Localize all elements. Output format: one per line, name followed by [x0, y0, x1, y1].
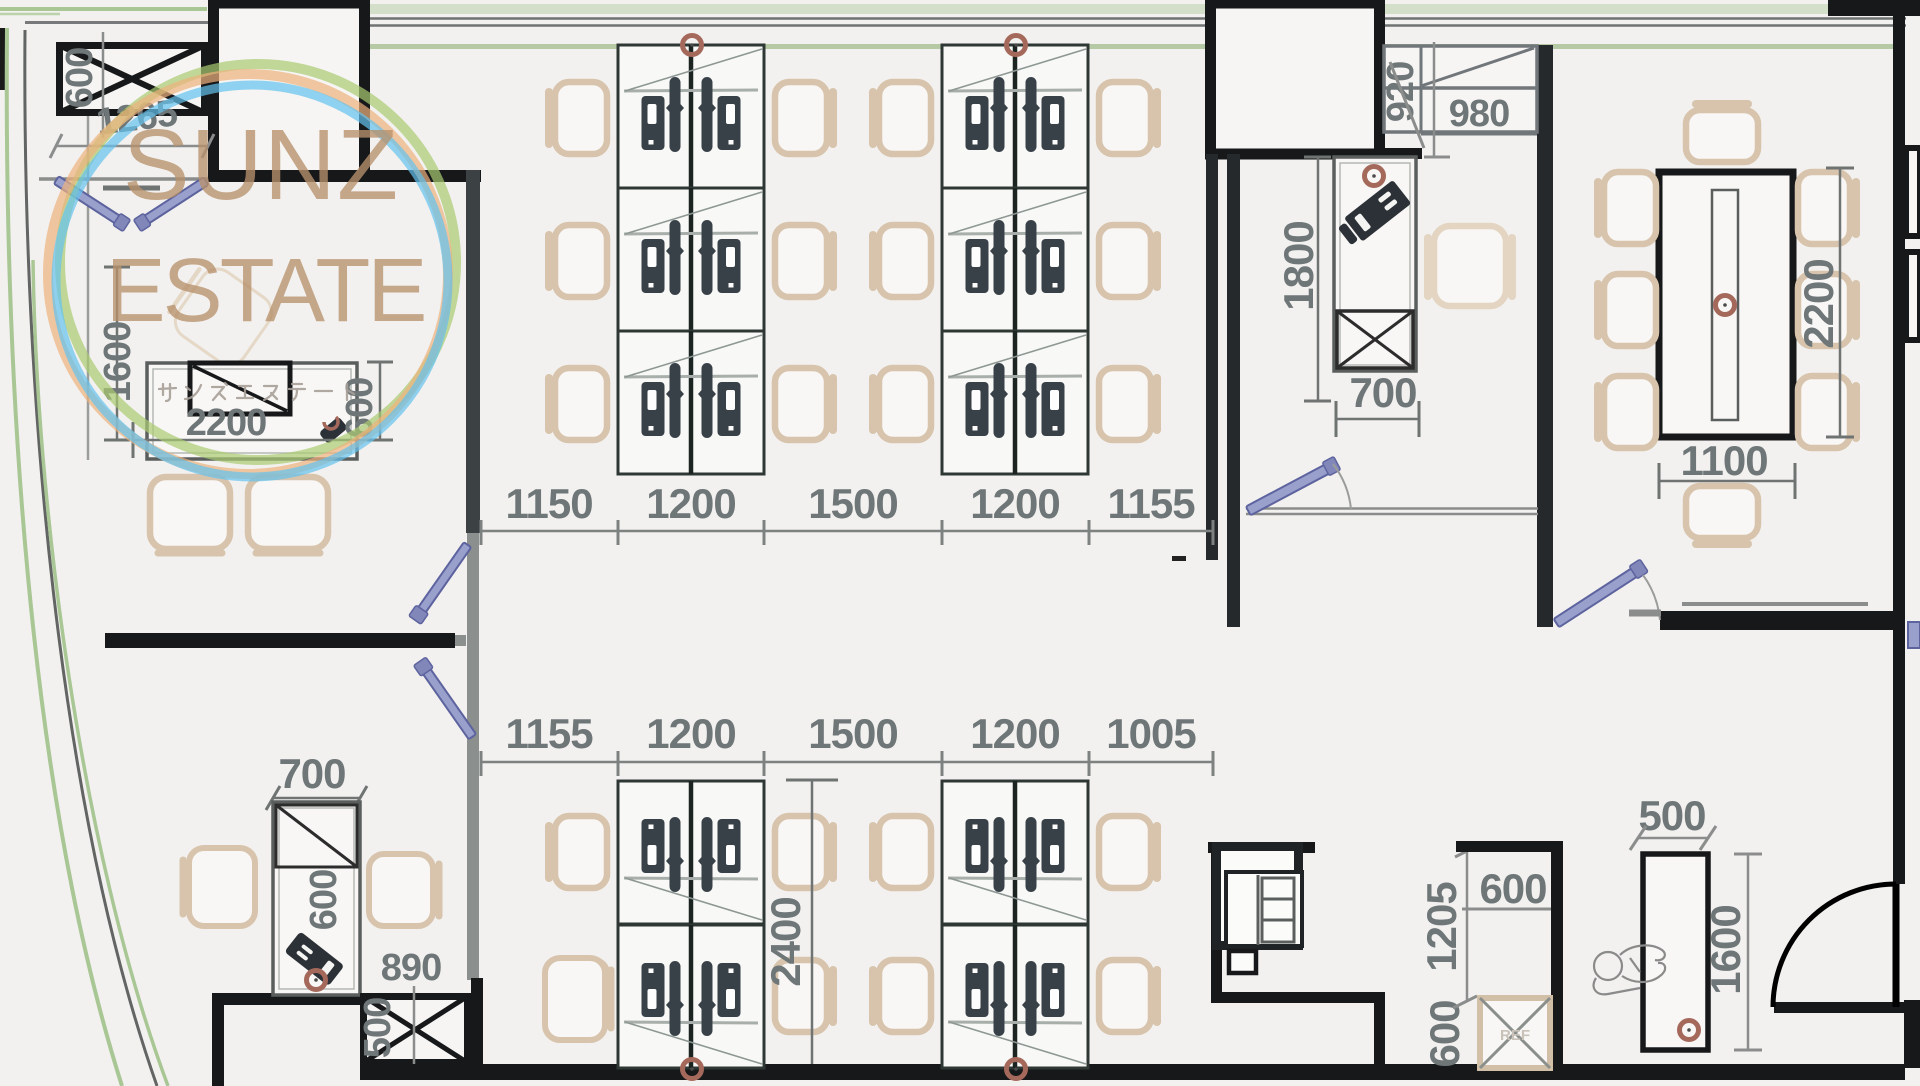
svg-text:1150: 1150	[505, 480, 592, 527]
svg-text:1205: 1205	[1418, 882, 1465, 972]
svg-text:1200: 1200	[646, 710, 735, 757]
svg-text:1600: 1600	[1702, 905, 1749, 994]
svg-text:ESTATE: ESTATE	[106, 241, 425, 341]
svg-text:2400: 2400	[762, 897, 809, 986]
svg-text:1155: 1155	[505, 710, 593, 757]
svg-text:1155: 1155	[1107, 480, 1195, 527]
svg-text:980: 980	[1449, 93, 1509, 135]
svg-text:600: 600	[1479, 865, 1546, 912]
svg-text:1500: 1500	[808, 710, 897, 757]
svg-text:500: 500	[1638, 792, 1705, 839]
svg-text:700: 700	[278, 750, 345, 797]
svg-text:1200: 1200	[970, 710, 1059, 757]
svg-text:1200: 1200	[646, 480, 735, 527]
svg-text:600: 600	[1421, 1000, 1468, 1067]
svg-text:700: 700	[1349, 369, 1416, 416]
svg-text:SUNZ: SUNZ	[123, 109, 399, 221]
svg-text:2200: 2200	[1795, 259, 1842, 348]
svg-text:1200: 1200	[970, 480, 1059, 527]
svg-text:600: 600	[303, 870, 345, 930]
svg-text:1800: 1800	[1275, 221, 1322, 310]
svg-text:1100: 1100	[1680, 437, 1767, 484]
svg-text:600: 600	[59, 48, 101, 108]
svg-text:500: 500	[357, 998, 399, 1058]
svg-text:890: 890	[381, 947, 441, 989]
svg-text:REF: REF	[1500, 1027, 1530, 1044]
svg-text:2200: 2200	[186, 402, 267, 444]
svg-text:1005: 1005	[1106, 710, 1196, 757]
svg-text:1500: 1500	[808, 480, 897, 527]
